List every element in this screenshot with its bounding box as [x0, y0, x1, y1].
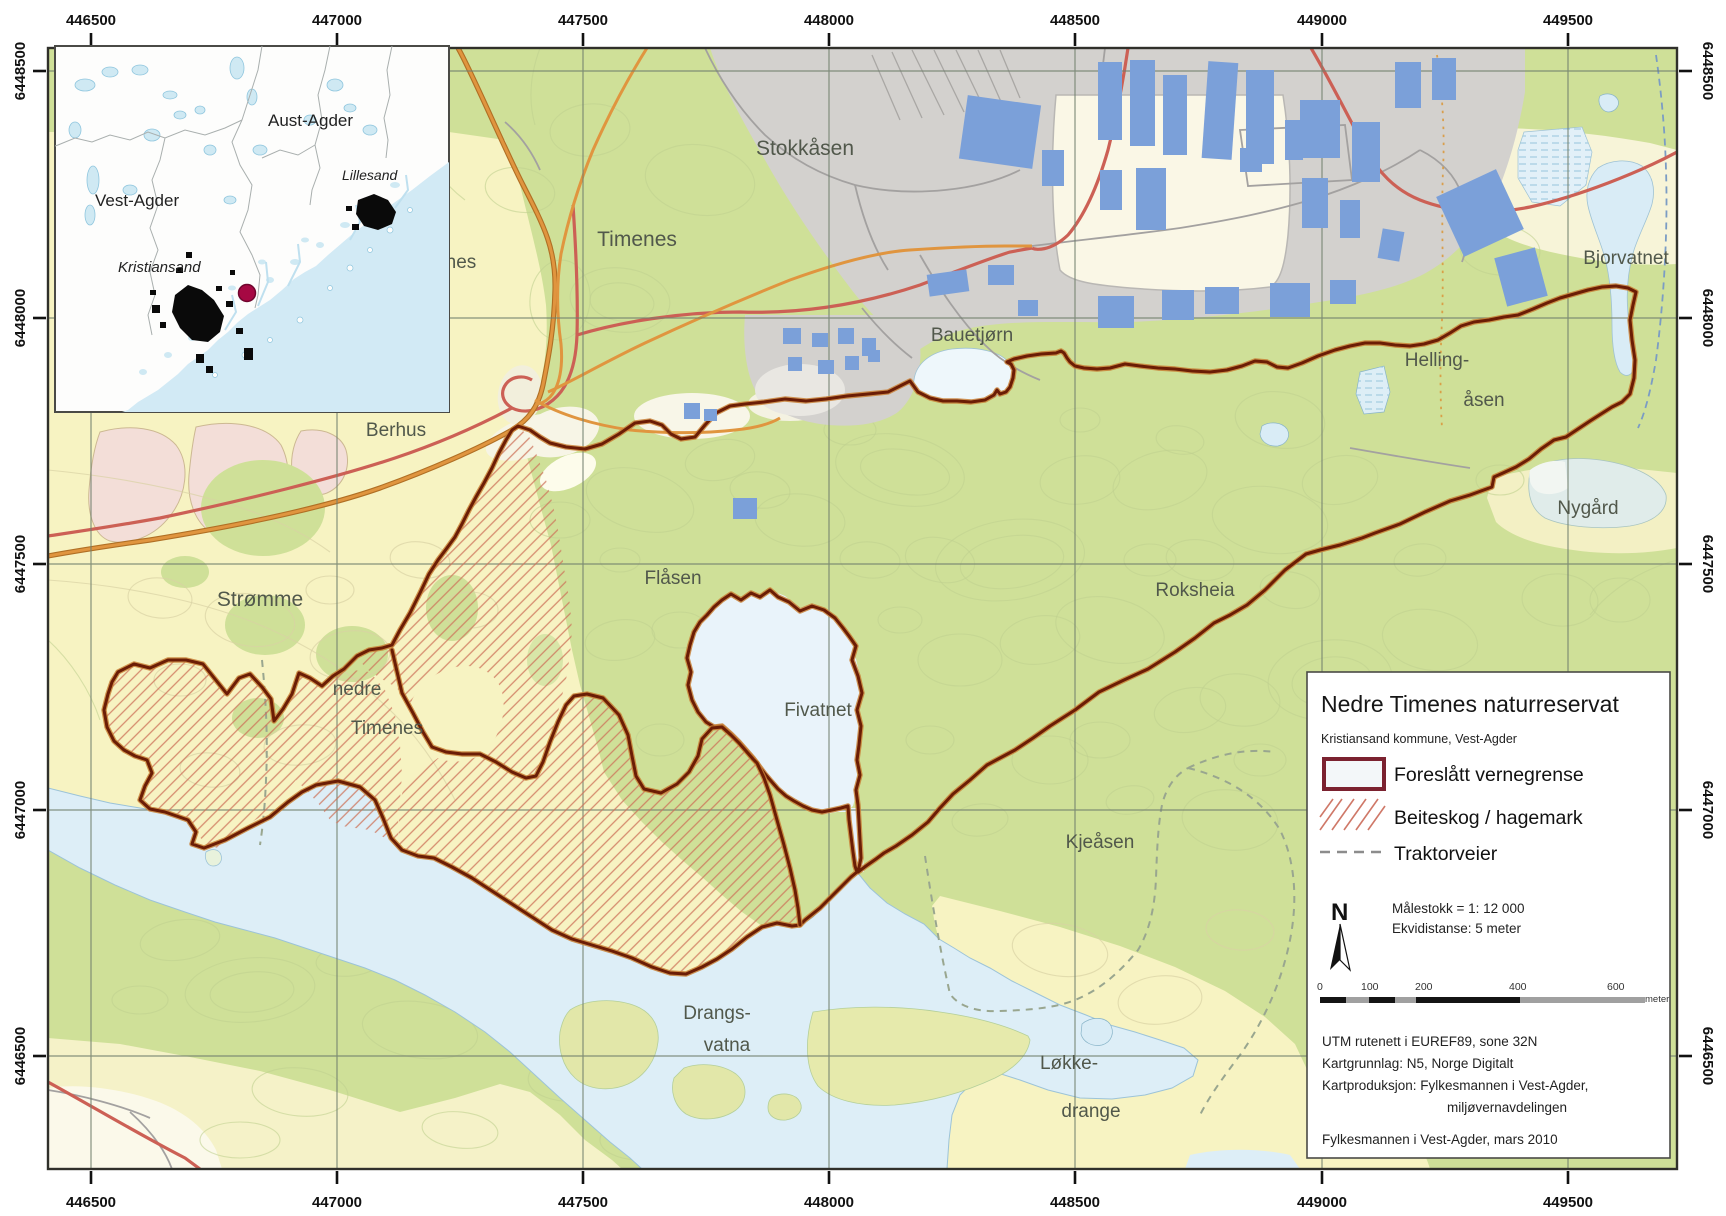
svg-text:448500: 448500: [1050, 1194, 1100, 1211]
svg-text:Foreslått vernegrense: Foreslått vernegrense: [1394, 764, 1584, 786]
svg-text:447500: 447500: [558, 1194, 608, 1211]
svg-text:Nedre Timenes naturreservat: Nedre Timenes naturreservat: [1321, 691, 1619, 717]
svg-text:Kristiansand kommune, Vest-Agd: Kristiansand kommune, Vest-Agder: [1321, 732, 1517, 746]
svg-text:448000: 448000: [804, 1194, 854, 1211]
svg-text:200: 200: [1415, 981, 1433, 993]
svg-text:6446500: 6446500: [12, 1027, 29, 1085]
svg-text:Helling-: Helling-: [1405, 350, 1469, 371]
svg-text:Kartgrunnlag: N5, Norge Digita: Kartgrunnlag: N5, Norge Digitalt: [1322, 1056, 1514, 1071]
svg-text:drange: drange: [1061, 1101, 1120, 1122]
svg-text:400: 400: [1509, 981, 1527, 993]
svg-text:446500: 446500: [66, 1194, 116, 1211]
svg-text:Beiteskog / hagemark: Beiteskog / hagemark: [1394, 807, 1583, 829]
svg-text:6446500: 6446500: [1699, 1027, 1716, 1085]
svg-text:6447500: 6447500: [1699, 535, 1716, 593]
svg-text:449000: 449000: [1297, 1194, 1347, 1211]
svg-text:100: 100: [1361, 981, 1379, 993]
svg-text:Roksheia: Roksheia: [1155, 580, 1235, 601]
svg-text:447000: 447000: [312, 1194, 362, 1211]
svg-text:UTM rutenett i EUREF89, sone 3: UTM rutenett i EUREF89, sone 32N: [1322, 1034, 1537, 1049]
svg-text:6448000: 6448000: [12, 289, 29, 347]
svg-text:600: 600: [1607, 981, 1625, 993]
svg-text:449500: 449500: [1543, 12, 1593, 29]
svg-text:Berhus: Berhus: [366, 420, 426, 441]
svg-text:nes: nes: [446, 252, 477, 273]
svg-text:0: 0: [1317, 981, 1323, 993]
svg-text:Lillesand: Lillesand: [342, 167, 398, 183]
svg-text:Timenes: Timenes: [597, 228, 677, 251]
svg-text:nedre: nedre: [333, 679, 382, 700]
svg-text:Flåsen: Flåsen: [644, 568, 701, 589]
svg-text:447000: 447000: [312, 12, 362, 29]
svg-text:vatna: vatna: [704, 1035, 751, 1056]
svg-text:Kristiansand: Kristiansand: [118, 259, 201, 276]
svg-text:6447000: 6447000: [1699, 781, 1716, 839]
svg-text:Timenes: Timenes: [351, 718, 423, 739]
svg-text:Bauetjørn: Bauetjørn: [931, 325, 1013, 346]
svg-text:6447000: 6447000: [12, 781, 29, 839]
svg-text:Bjorvatnet: Bjorvatnet: [1583, 248, 1669, 269]
svg-text:Kartproduksjon: Fylkesmannen i: Kartproduksjon: Fylkesmannen i Vest-Agde…: [1322, 1078, 1588, 1093]
svg-text:Fylkesmannen i Vest-Agder, mar: Fylkesmannen i Vest-Agder, mars 2010: [1322, 1132, 1558, 1147]
svg-text:Strømme: Strømme: [217, 588, 303, 611]
svg-text:Vest-Agder: Vest-Agder: [95, 191, 179, 210]
svg-text:448500: 448500: [1050, 12, 1100, 29]
svg-text:miljøvernavdelingen: miljøvernavdelingen: [1447, 1100, 1567, 1115]
svg-text:åsen: åsen: [1463, 390, 1504, 411]
svg-text:448000: 448000: [804, 12, 854, 29]
svg-text:Aust-Agder: Aust-Agder: [268, 111, 353, 130]
svg-text:Drangs-: Drangs-: [683, 1003, 751, 1024]
svg-text:Ekvidistanse: 5 meter: Ekvidistanse: 5 meter: [1392, 921, 1522, 936]
svg-text:6448500: 6448500: [12, 42, 29, 100]
svg-text:Målestokk = 1: 12 000: Målestokk = 1: 12 000: [1392, 901, 1524, 916]
svg-text:447500: 447500: [558, 12, 608, 29]
svg-text:449000: 449000: [1297, 12, 1347, 29]
svg-text:Nygård: Nygård: [1557, 498, 1618, 519]
svg-text:Traktorveier: Traktorveier: [1394, 843, 1498, 865]
svg-text:Fivatnet: Fivatnet: [784, 700, 852, 721]
svg-text:449500: 449500: [1543, 1194, 1593, 1211]
svg-text:6448000: 6448000: [1699, 289, 1716, 347]
svg-text:6448500: 6448500: [1699, 42, 1716, 100]
svg-text:Løkke-: Løkke-: [1040, 1053, 1098, 1074]
svg-text:Kjeåsen: Kjeåsen: [1066, 832, 1135, 853]
svg-text:Stokkåsen: Stokkåsen: [756, 137, 854, 160]
svg-text:6447500: 6447500: [12, 535, 29, 593]
svg-text:N: N: [1331, 899, 1348, 926]
svg-text:meter: meter: [1645, 994, 1669, 1005]
svg-text:446500: 446500: [66, 12, 116, 29]
